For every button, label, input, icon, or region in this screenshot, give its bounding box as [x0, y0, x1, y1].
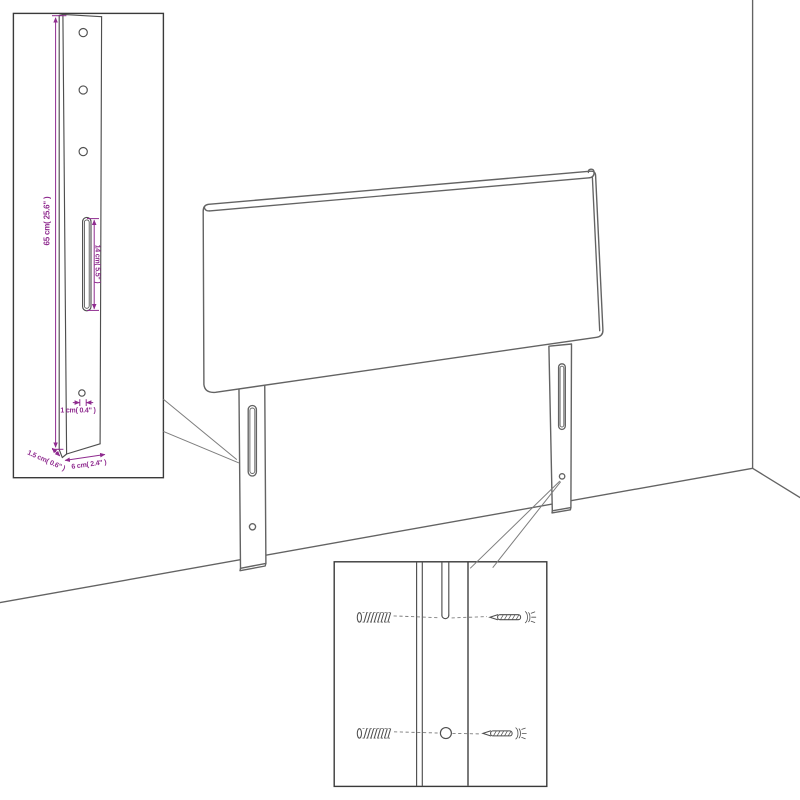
callout-line-bracket-upper	[163, 399, 236, 459]
headboard-panel	[203, 169, 603, 392]
floor-line-right	[753, 468, 800, 497]
callout-line-bracket-lower	[163, 431, 239, 463]
callout-line-mount-right	[493, 482, 561, 568]
right-leg	[549, 344, 572, 513]
left-leg	[239, 378, 266, 571]
diagram-canvas	[0, 0, 800, 800]
callout-lines	[163, 399, 560, 568]
callout-line-mount-left	[470, 481, 560, 568]
mounting-inset-frame	[334, 562, 547, 787]
dimension-label-slot-length: 14 cm( 5.5" )	[94, 245, 101, 284]
dimension-label-hole-diameter: 1 cm( 0.4" )	[60, 408, 95, 415]
headboard-assembly-diagram: 65 cm( 25.6" ) 14 cm( 5.5" ) 1 cm( 0.4" …	[0, 0, 800, 800]
headboard-outline	[203, 171, 603, 392]
dimension-label-height: 65 cm( 25.6" )	[43, 196, 52, 245]
mounting-detail-inset	[334, 562, 547, 787]
